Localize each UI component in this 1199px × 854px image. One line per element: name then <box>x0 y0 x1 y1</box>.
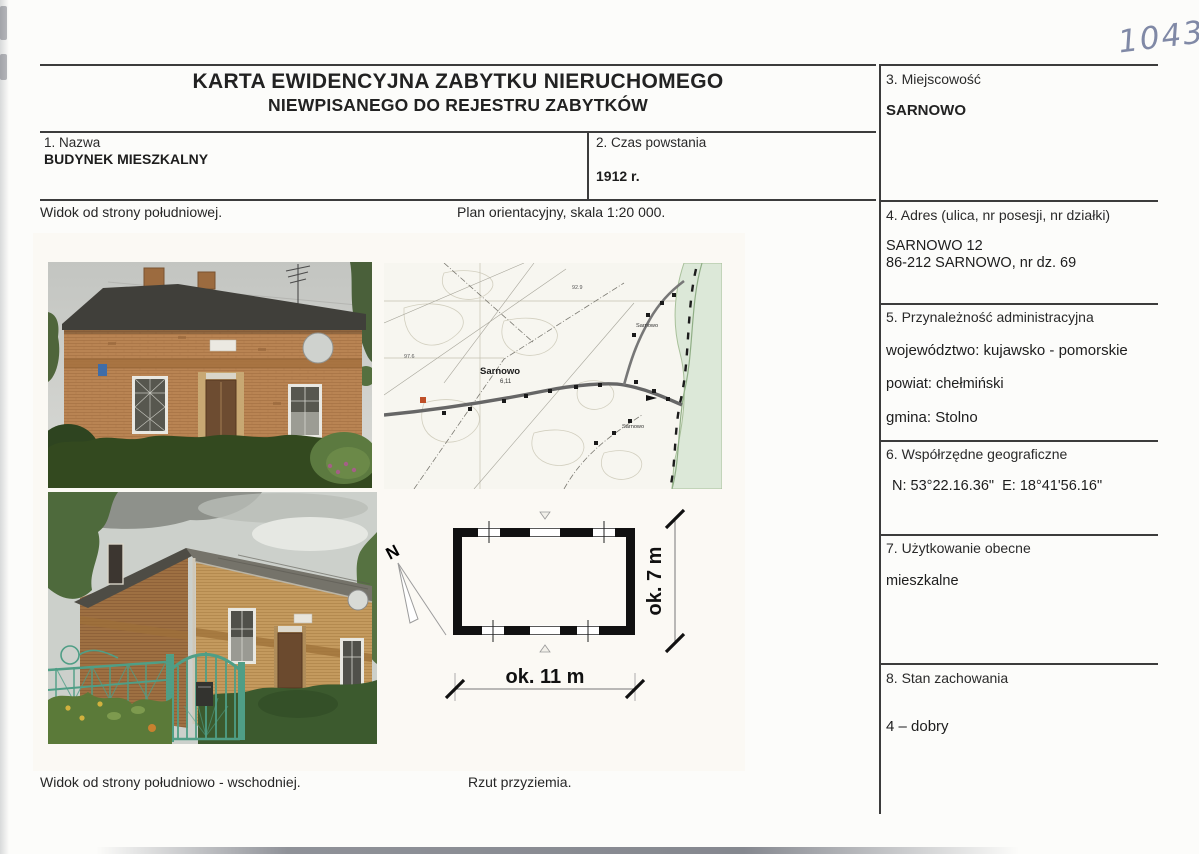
field4-label: 4. Adres (ulica, nr posesji, nr działki) <box>886 207 1110 223</box>
photo-southeast-view <box>48 492 377 744</box>
photo-south-view <box>48 262 372 488</box>
field1-value: BUDYNEK MIESZKALNY <box>44 151 208 167</box>
caption-floor-plan: Rzut przyziemia. <box>468 774 571 790</box>
border-right-column-vertical <box>879 64 881 814</box>
window-front-left <box>228 608 256 664</box>
dimension-width: ok. 11 m <box>446 666 644 701</box>
subject-building-marker <box>420 397 426 403</box>
border-fields-bottom <box>40 199 876 201</box>
field5-label: 5. Przynależność administracyjna <box>886 309 1094 325</box>
field2-label: 2. Czas powstania <box>596 135 706 150</box>
border-field5-bottom <box>879 440 1158 442</box>
scan-edge-left <box>0 0 9 854</box>
field4-address-line1: SARNOWO 12 <box>886 238 983 254</box>
map-label-road-number: 6,11 <box>500 379 512 385</box>
window-left <box>132 376 168 434</box>
house-number-plaque <box>98 364 107 376</box>
field5-voivodeship: województwo: kujawsko - pomorskie <box>886 342 1128 359</box>
window-front-right <box>340 638 364 688</box>
border-field3-bottom <box>879 200 1158 202</box>
map-elevation-north: 92.9 <box>572 285 583 291</box>
border-field1-field2-divider <box>587 131 589 199</box>
floor-plan-drawing: N ok. 11 m ok. 7 m <box>384 505 714 730</box>
map-label-sarnowo-south: Sarnowo <box>622 424 644 430</box>
field7-value: mieszkalne <box>886 573 959 589</box>
field6-coordinates: N: 53°22.16.36" E: 18°41'56.16" <box>892 478 1102 494</box>
mailbox <box>196 682 213 706</box>
plan-width-label: ok. 11 m <box>506 666 585 688</box>
window-right <box>288 384 322 438</box>
caption-photo-southeast: Widok od strony południowo - wschodniej. <box>40 774 301 790</box>
scan-edge-bottom <box>0 847 1199 854</box>
map-label-sarnowo-center: Sarnowo <box>480 366 520 377</box>
plan-walls <box>453 528 635 635</box>
plan-openings <box>478 521 615 642</box>
border-field7-bottom <box>879 663 1158 665</box>
caption-orientation-map: Plan orientacyjny, skala 1:20 000. <box>457 204 665 220</box>
map-label-sarnowo-north: Sarnowo <box>636 323 658 329</box>
field2-value: 1912 r. <box>596 168 640 184</box>
field5-commune: gmina: Stolno <box>886 409 978 426</box>
record-card-page: 10438 KARTA EWIDENCYJNA ZABYTKU NIERUCHO… <box>0 0 1199 854</box>
orientation-map: Sarnowo 6,11 Sarnowo Sarnowo 97.6 92.9 <box>384 263 722 489</box>
border-title-top <box>40 64 876 66</box>
border-title-bottom <box>40 131 876 133</box>
field6-label: 6. Współrzędne geograficzne <box>886 446 1067 462</box>
front-door <box>274 626 306 690</box>
north-arrow: N <box>384 541 446 635</box>
card-title-line2: NIEWPISANEGO DO REJESTRU ZABYTKÓW <box>40 95 876 116</box>
field7-label: 7. Użytkowanie obecne <box>886 540 1031 556</box>
card-title-line1: KARTA EWIDENCYJNA ZABYTKU NIERUCHOMEGO <box>40 69 876 95</box>
caption-photo-south: Widok od strony południowej. <box>40 204 222 220</box>
front-door <box>198 372 244 440</box>
satellite-dish <box>348 590 368 610</box>
border-right-top <box>879 64 1158 66</box>
card-title: KARTA EWIDENCYJNA ZABYTKU NIERUCHOMEGO N… <box>40 69 876 116</box>
plan-height-label: ok. 7 m <box>644 547 666 616</box>
satellite-dish <box>303 333 333 363</box>
field3-label: 3. Miejscowość <box>886 71 981 87</box>
dimension-height: ok. 7 m <box>644 510 684 652</box>
north-label: N <box>384 541 402 564</box>
field1-label: 1. Nazwa <box>44 135 100 150</box>
field3-value: SARNOWO <box>886 102 966 119</box>
field8-value: 4 – dobry <box>886 718 949 735</box>
map-elevation-west: 97.6 <box>404 354 415 360</box>
field4-address-line2: 86-212 SARNOWO, nr dz. 69 <box>886 255 1076 271</box>
border-field4-bottom <box>879 303 1158 305</box>
field8-label: 8. Stan zachowania <box>886 670 1008 686</box>
handwritten-inventory-number: 10438 <box>1116 12 1199 61</box>
attic-window <box>108 544 123 584</box>
border-field6-bottom <box>879 534 1158 536</box>
field5-county: powiat: chełmiński <box>886 376 1004 392</box>
